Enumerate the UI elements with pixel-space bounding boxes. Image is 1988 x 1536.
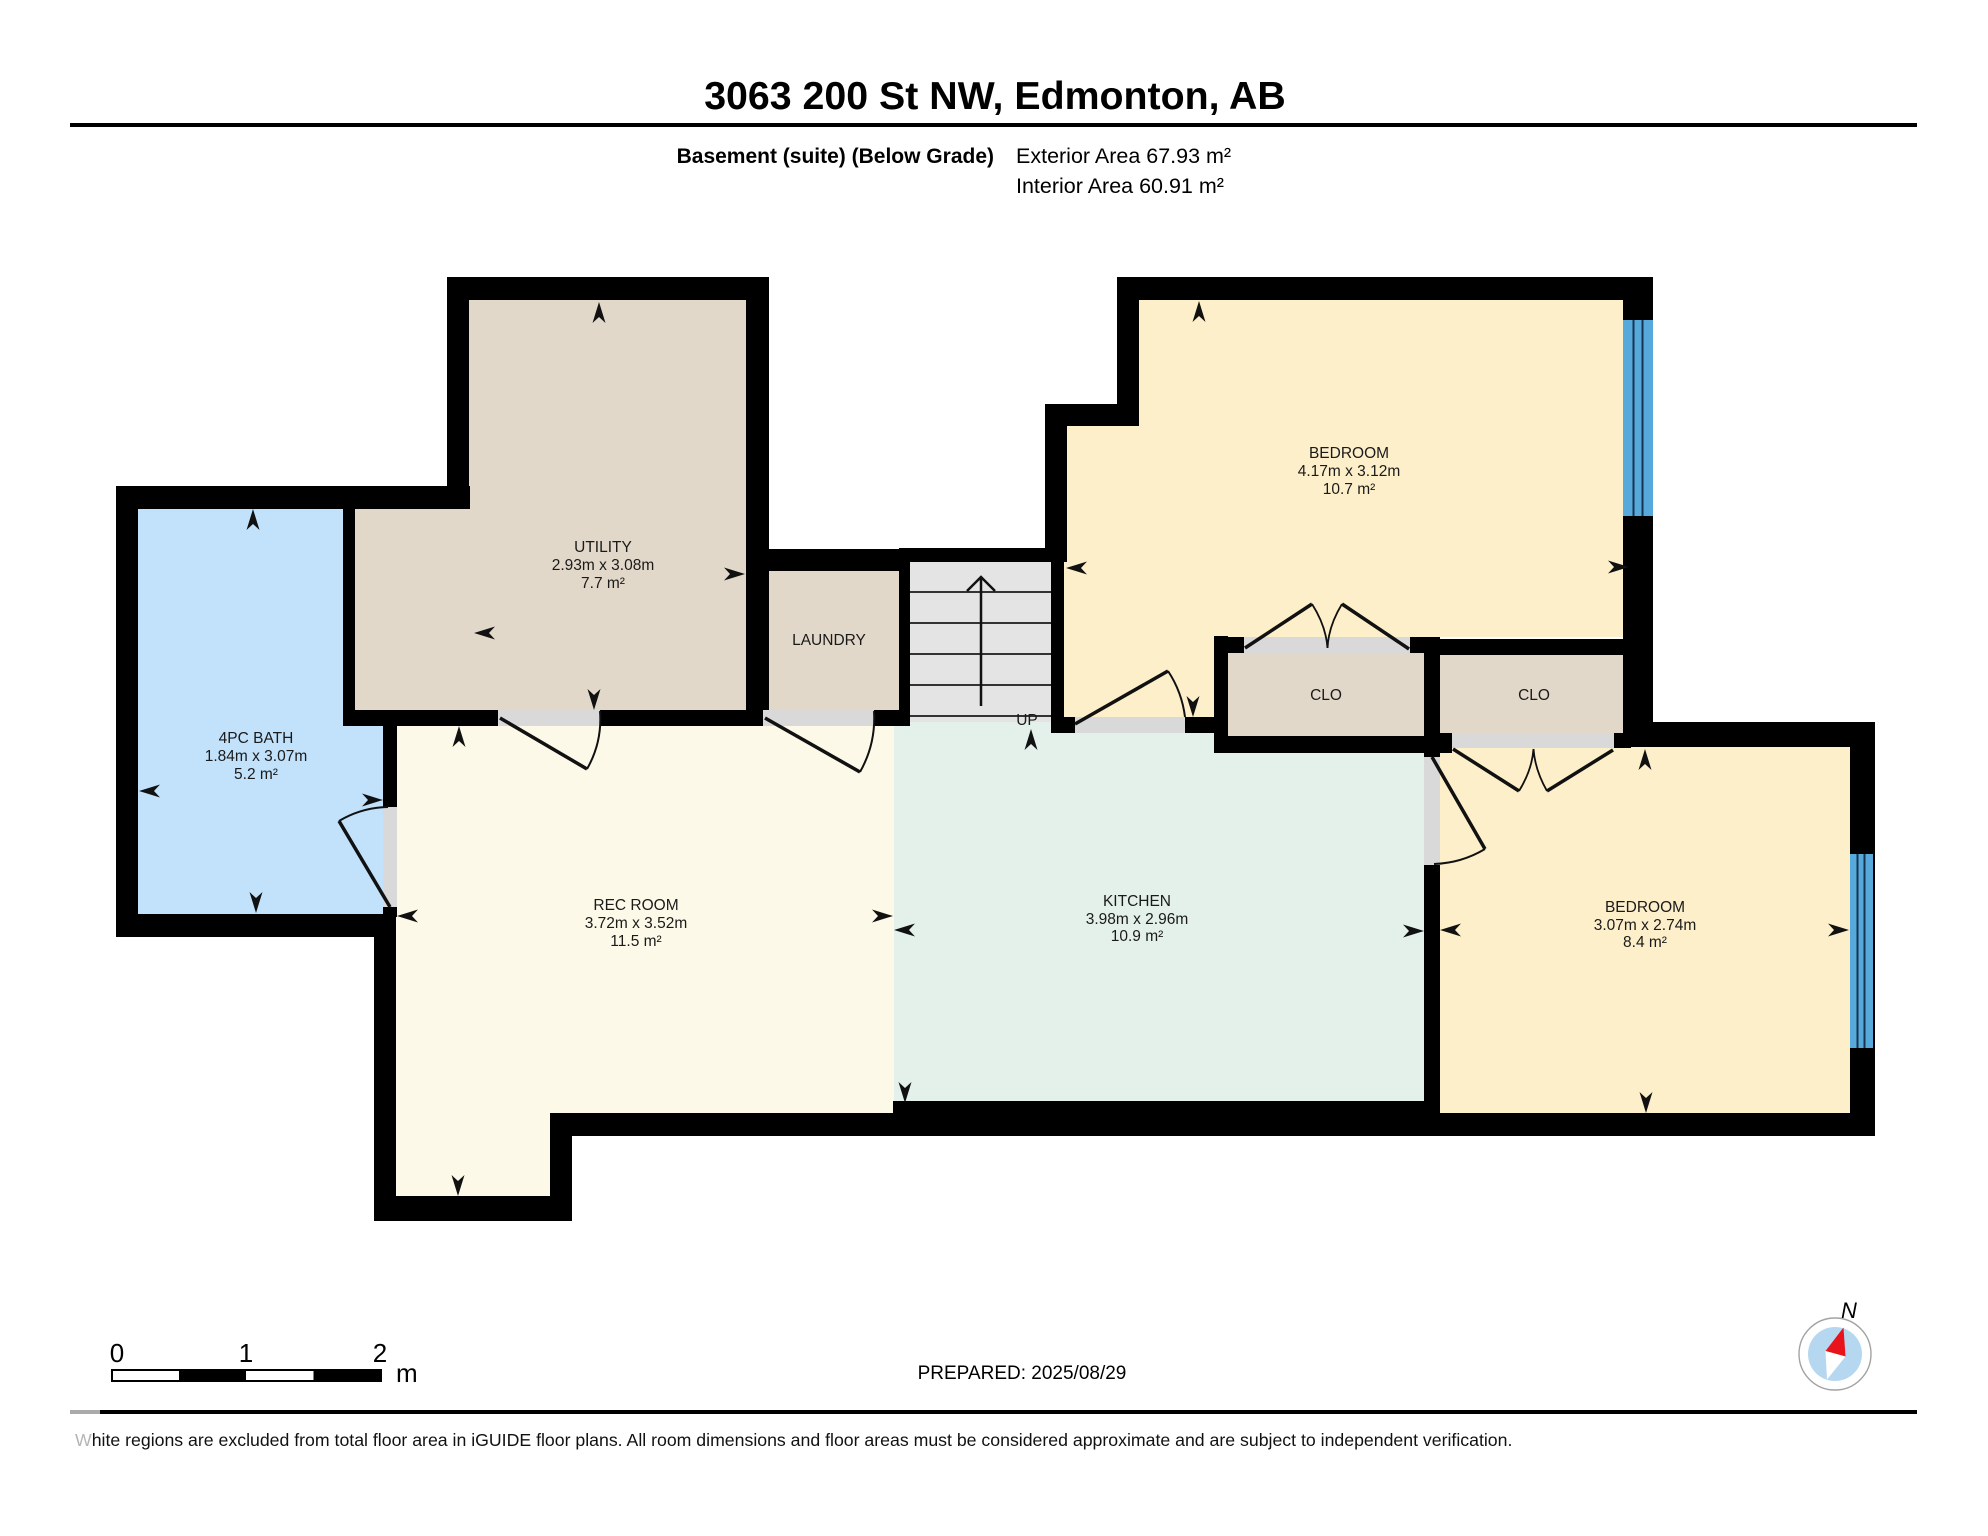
svg-text:Interior Area 60.91 m²: Interior Area 60.91 m² [1016,174,1224,198]
svg-text:5.2 m²: 5.2 m² [234,766,278,783]
svg-text:7.7 m²: 7.7 m² [581,575,625,592]
svg-text:Basement (suite) (Below Grade): Basement (suite) (Below Grade) [677,145,994,168]
svg-text:1: 1 [239,1338,253,1368]
svg-text:4.17m x 3.12m: 4.17m x 3.12m [1298,463,1401,480]
svg-text:0: 0 [110,1338,124,1368]
svg-text:4PC BATH: 4PC BATH [219,730,294,747]
svg-text:BEDROOM: BEDROOM [1309,445,1389,462]
svg-text:3.07m x 2.74m: 3.07m x 2.74m [1594,917,1697,934]
svg-text:10.9 m²: 10.9 m² [1111,928,1164,945]
svg-text:2.93m x 3.08m: 2.93m x 3.08m [552,557,655,574]
svg-text:REC ROOM: REC ROOM [593,897,678,914]
svg-text:3063 200 St NW, Edmonton, AB: 3063 200 St NW, Edmonton, AB [704,74,1286,118]
svg-text:CLO: CLO [1310,687,1342,704]
svg-text:3.72m x 3.52m: 3.72m x 3.52m [585,915,688,932]
svg-text:LAUNDRY: LAUNDRY [792,632,866,649]
svg-text:N: N [1841,1298,1857,1323]
svg-text:CLO: CLO [1518,687,1550,704]
svg-text:10.7 m²: 10.7 m² [1323,481,1376,498]
svg-text:Exterior Area 67.93 m²: Exterior Area 67.93 m² [1016,144,1231,168]
svg-text:8.4 m²: 8.4 m² [1623,934,1667,951]
svg-text:PREPARED: 2025/08/29: PREPARED: 2025/08/29 [918,1363,1127,1384]
svg-text:11.5 m²: 11.5 m² [610,933,661,950]
svg-text:1.84m x 3.07m: 1.84m x 3.07m [205,748,308,765]
svg-text:m: m [396,1358,418,1388]
svg-text:UP: UP [1016,712,1038,729]
svg-text:White regions are excluded fro: White regions are excluded from total fl… [75,1430,1512,1450]
svg-text:3.98m x 2.96m: 3.98m x 2.96m [1086,911,1189,928]
svg-text:BEDROOM: BEDROOM [1605,899,1685,916]
svg-text:KITCHEN: KITCHEN [1103,893,1171,910]
svg-text:2: 2 [373,1338,387,1368]
svg-text:UTILITY: UTILITY [574,539,632,556]
